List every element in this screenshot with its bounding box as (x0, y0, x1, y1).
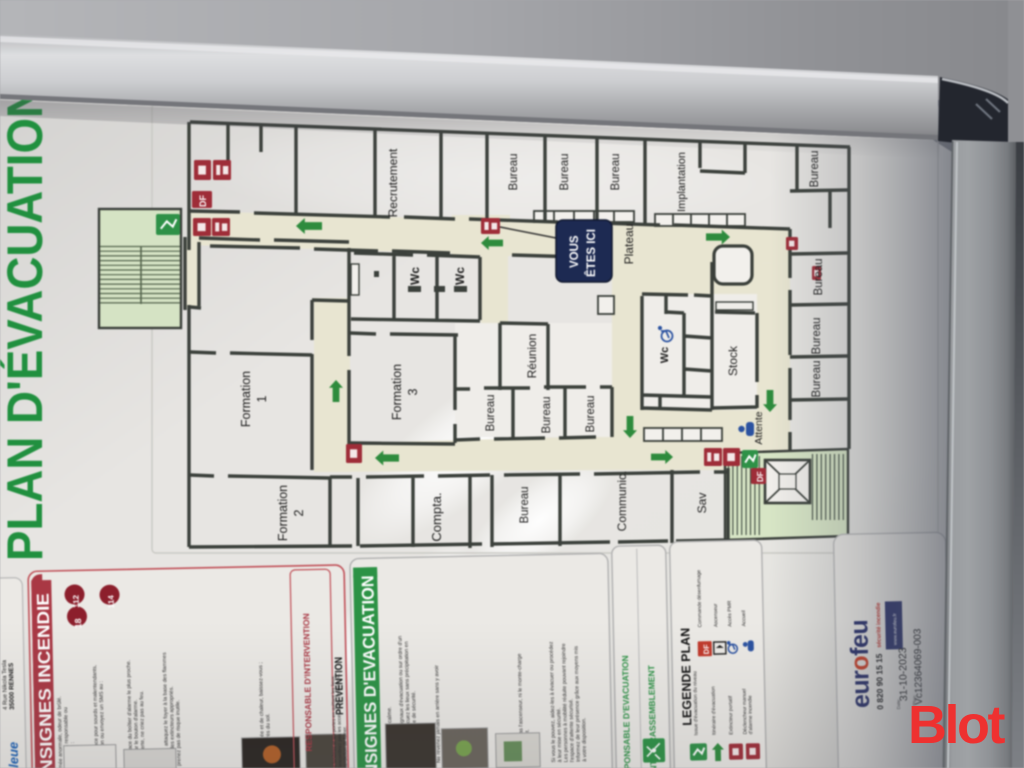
svg-text:Attente: Attente (753, 411, 765, 444)
svg-text:Sav: Sav (695, 493, 709, 514)
svg-text:Formation: Formation (276, 485, 290, 541)
svg-text:Wc: Wc (453, 267, 467, 285)
svg-text:Formation: Formation (239, 371, 253, 427)
svg-text:VOUS: VOUS (569, 235, 581, 268)
svg-text:3: 3 (406, 388, 420, 395)
svg-text:1: 1 (255, 395, 269, 402)
svg-text:Bureau: Bureau (585, 395, 597, 432)
svg-text:Recrutement: Recrutement (386, 148, 400, 217)
svg-text:Plateau: Plateau (622, 224, 636, 265)
svg-text:Wc: Wc (659, 347, 671, 364)
svg-text:Bureau: Bureau (508, 153, 520, 190)
svg-text:ou: ou (74, 604, 80, 611)
svg-text:Bureau: Bureau (485, 394, 497, 431)
svg-text:DF: DF (756, 471, 765, 482)
svg-text:Bureau: Bureau (610, 153, 622, 190)
svg-text:Bureau: Bureau (519, 486, 531, 523)
svg-text:Commande désenfumage: Commande désenfumage (696, 570, 703, 628)
svg-text:Implantation: Implantation (676, 152, 688, 212)
svg-text:114: 114 (107, 595, 116, 609)
svg-text:Compta.: Compta. (429, 492, 444, 541)
svg-text:2: 2 (292, 509, 306, 516)
svg-text:Communic.: Communic. (615, 471, 629, 532)
svg-text:PLAN D'ÉVACUATION: PLAN D'ÉVACUATION (0, 85, 53, 561)
svg-text:Réunion: Réunion (525, 334, 539, 379)
svg-text:Formation: Formation (390, 364, 404, 420)
svg-text:Wc: Wc (408, 267, 422, 285)
svg-text:Bureau: Bureau (541, 396, 553, 433)
svg-text:Stock: Stock (726, 345, 740, 376)
svg-text:Bureau: Bureau (559, 153, 571, 190)
svg-text:ÊTES ICI: ÊTES ICI (585, 229, 598, 277)
svg-text:DF: DF (198, 195, 208, 207)
